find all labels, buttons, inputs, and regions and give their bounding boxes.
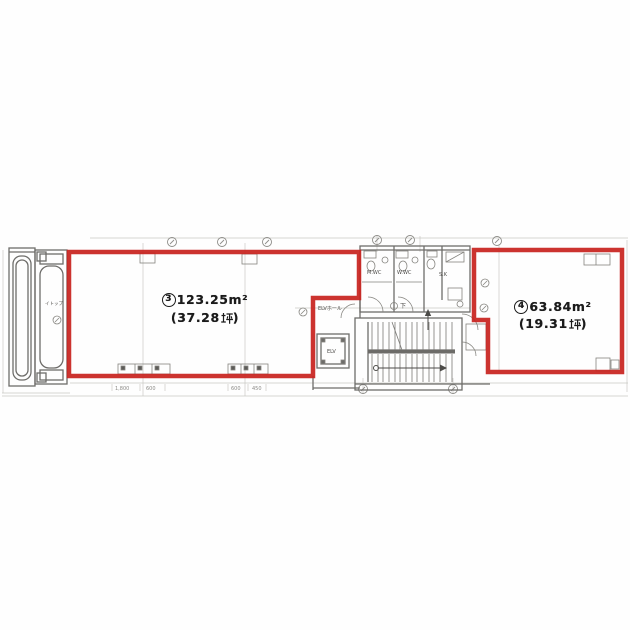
room-4-circled-number: 4 bbox=[514, 300, 528, 314]
tsubo-kanji-icon bbox=[221, 311, 233, 324]
elv-hall-label: ELVホール bbox=[318, 305, 342, 312]
mens-wc-label: M.WC bbox=[367, 270, 381, 276]
room-3-area-label: 3 123.25m² bbox=[130, 292, 280, 307]
floor-plan-page: 3 123.25m² (37.28 ) 4 63.84m² (19.31 ) E… bbox=[0, 0, 630, 630]
dimension-text: 1,800 bbox=[115, 386, 129, 392]
dimension-text: 600 bbox=[146, 386, 156, 392]
dimension-text: 450 bbox=[252, 386, 262, 392]
room-4-area-label: 4 63.84m² bbox=[483, 299, 623, 314]
shaft-label: イトップ bbox=[45, 301, 63, 307]
room-3-tsubo-label: (37.28 ) bbox=[130, 310, 280, 325]
womens-wc-label: W.WC bbox=[397, 270, 411, 276]
room-3-tsubo-close: ) bbox=[233, 310, 239, 325]
room-4-area-text: 63.84m² bbox=[529, 299, 591, 314]
room-4-tsubo-close: ) bbox=[581, 316, 587, 331]
room-3-tsubo-open: (37.28 bbox=[171, 310, 220, 325]
dimension-text: 600 bbox=[231, 386, 241, 392]
stair-down-label: 下 bbox=[400, 301, 406, 310]
room-4-tsubo-open: (19.31 bbox=[519, 316, 568, 331]
sink-label: S.K bbox=[439, 272, 447, 278]
elevator-label: ELV bbox=[327, 349, 336, 355]
tsubo-kanji-icon bbox=[569, 317, 581, 330]
floor-plan-drawing bbox=[0, 0, 630, 630]
room-3-area-text: 123.25m² bbox=[177, 292, 249, 307]
staircase bbox=[368, 309, 455, 382]
room-3-circled-number: 3 bbox=[162, 293, 176, 307]
room-4-tsubo-label: (19.31 ) bbox=[483, 316, 623, 331]
